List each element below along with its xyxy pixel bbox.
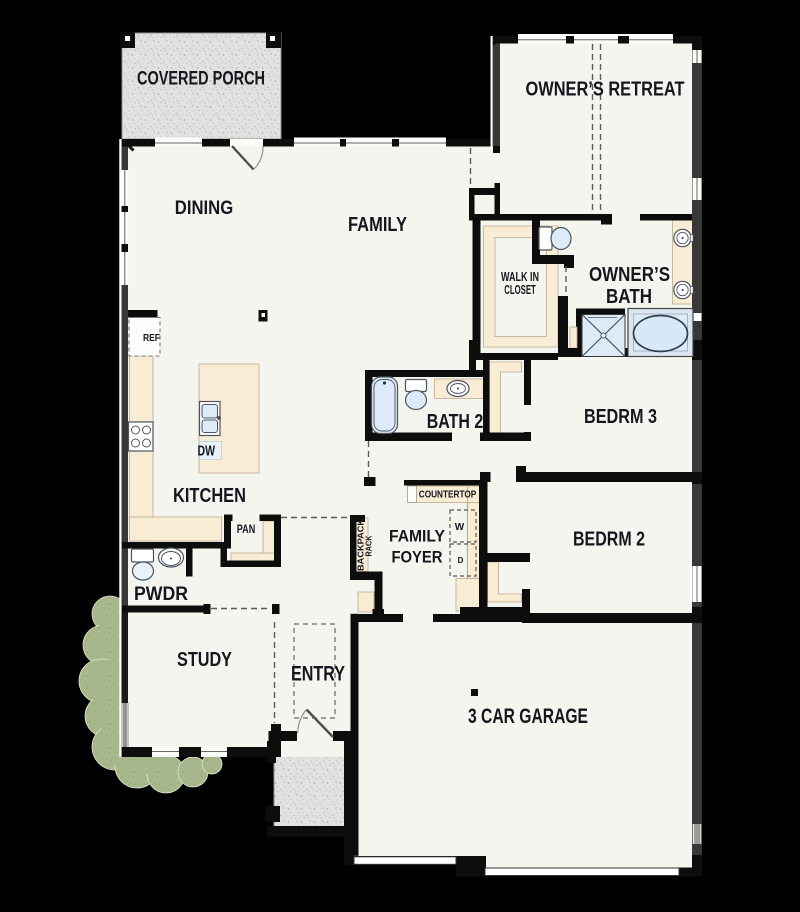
svg-text:FOYER: FOYER xyxy=(392,548,443,567)
svg-text:COVERED PORCH: COVERED PORCH xyxy=(137,69,265,90)
svg-text:KITCHEN: KITCHEN xyxy=(173,485,246,507)
svg-text:CLOSET: CLOSET xyxy=(504,283,536,297)
svg-text:FAMILY: FAMILY xyxy=(389,527,446,546)
svg-text:FAMILY: FAMILY xyxy=(348,214,408,236)
svg-text:D: D xyxy=(458,556,464,565)
svg-text:BEDRM 3: BEDRM 3 xyxy=(584,406,657,428)
svg-text:BATH 2: BATH 2 xyxy=(427,411,484,433)
svg-text:BEDRM 2: BEDRM 2 xyxy=(573,529,645,551)
svg-text:STUDY: STUDY xyxy=(177,649,233,671)
svg-text:DINING: DINING xyxy=(175,198,234,219)
svg-text:ENTRY: ENTRY xyxy=(291,663,345,686)
svg-text:REF: REF xyxy=(143,333,160,344)
svg-text:PWDR: PWDR xyxy=(134,584,188,605)
svg-text:W: W xyxy=(455,522,465,533)
svg-text:OWNER’S RETREAT: OWNER’S RETREAT xyxy=(526,79,685,101)
svg-text:DW: DW xyxy=(198,444,216,460)
svg-text:BATH: BATH xyxy=(606,286,652,308)
svg-text:COUNTERTOP: COUNTERTOP xyxy=(419,490,477,501)
svg-text:OWNER’S: OWNER’S xyxy=(589,264,670,286)
svg-text:RACK: RACK xyxy=(364,535,374,557)
svg-text:3 CAR GARAGE: 3 CAR GARAGE xyxy=(468,705,588,728)
svg-text:PAN: PAN xyxy=(237,522,256,536)
svg-text:WALK IN: WALK IN xyxy=(501,270,539,284)
